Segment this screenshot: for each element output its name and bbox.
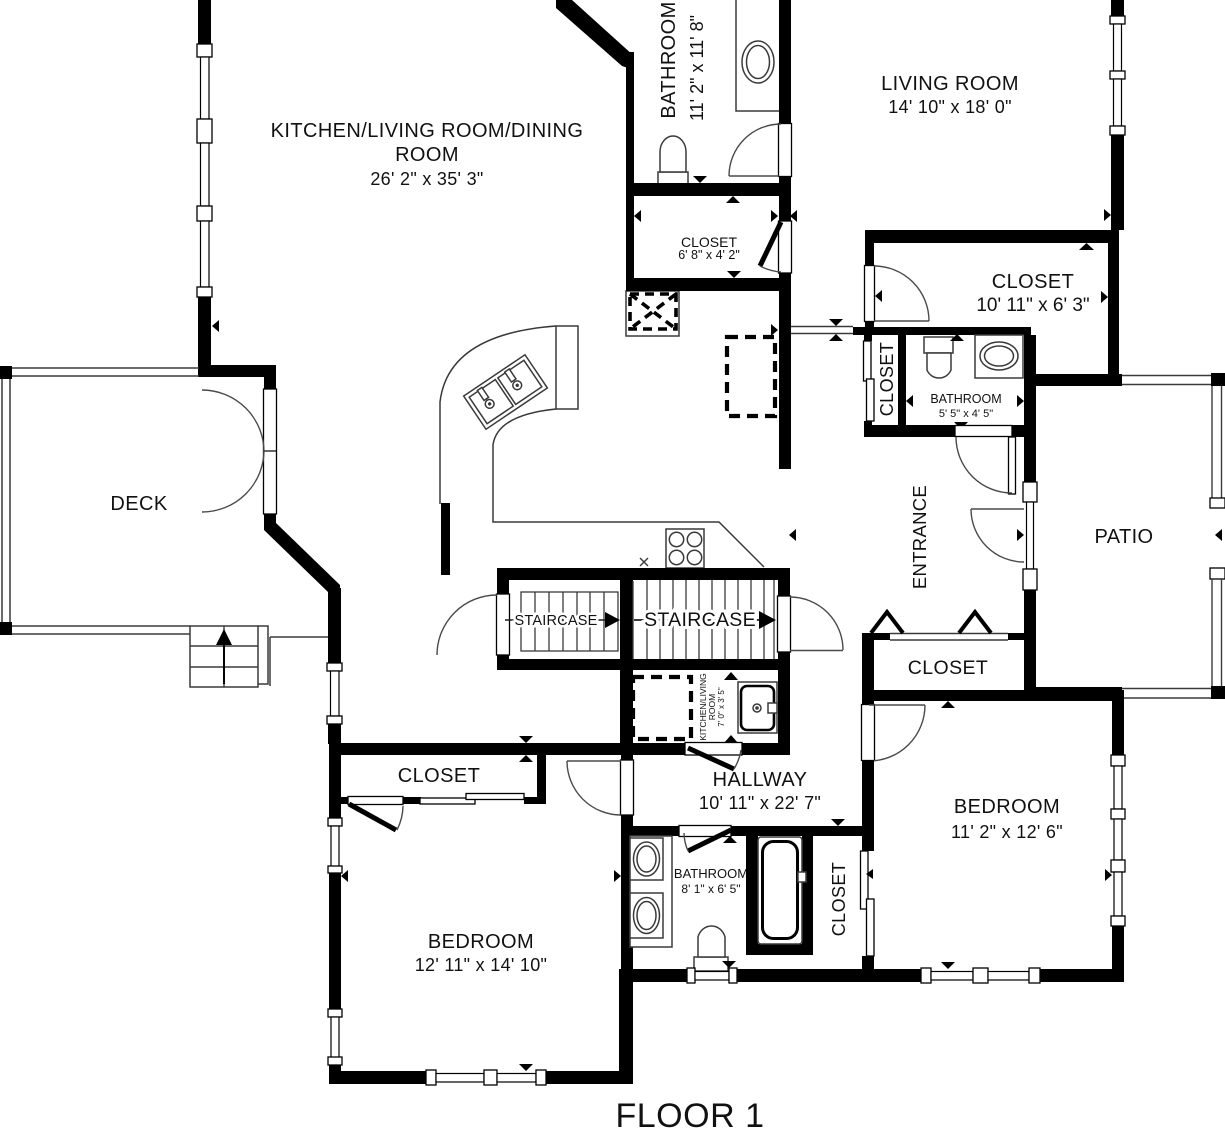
svg-text:11' 2" x 12' 6": 11' 2" x 12' 6" (951, 822, 1063, 842)
svg-text:ROOM: ROOM (395, 144, 459, 166)
svg-text:KITCHEN/LIVING ROOM/DINING: KITCHEN/LIVING ROOM/DINING (271, 120, 584, 142)
svg-text:CLOSET: CLOSET (877, 342, 897, 416)
svg-text:14' 10" x 18' 0": 14' 10" x 18' 0" (888, 97, 1012, 117)
svg-text:ROOM: ROOM (707, 694, 717, 720)
svg-text:7' 0" x 3' 5": 7' 0" x 3' 5" (717, 687, 726, 727)
svg-text:BATHROOM: BATHROOM (674, 866, 748, 881)
svg-text:5' 5" x 4' 5": 5' 5" x 4' 5" (939, 408, 993, 420)
svg-text:CLOSET: CLOSET (398, 765, 480, 787)
svg-text:BEDROOM: BEDROOM (428, 931, 534, 953)
svg-text:STAIRCASE: STAIRCASE (644, 609, 756, 631)
svg-text:DECK: DECK (110, 493, 167, 515)
svg-text:HALLWAY: HALLWAY (713, 769, 808, 791)
svg-text:8' 1" x 6' 5": 8' 1" x 6' 5" (681, 882, 740, 896)
svg-text:LIVING ROOM: LIVING ROOM (881, 73, 1019, 95)
svg-text:11' 2" x 11' 8": 11' 2" x 11' 8" (687, 15, 707, 121)
svg-text:10' 11" x 6' 3": 10' 11" x 6' 3" (976, 295, 1089, 316)
svg-text:CLOSET: CLOSET (829, 862, 849, 936)
svg-text:ENTRANCE: ENTRANCE (909, 485, 930, 589)
svg-text:FLOOR 1: FLOOR 1 (616, 1097, 765, 1132)
svg-text:PATIO: PATIO (1094, 526, 1153, 548)
svg-text:10' 11" x 22' 7": 10' 11" x 22' 7" (699, 793, 821, 813)
svg-text:6' 8" x 4' 2": 6' 8" x 4' 2" (678, 248, 740, 262)
svg-text:12' 11" x 14' 10": 12' 11" x 14' 10" (415, 955, 548, 975)
svg-text:BATHROOM: BATHROOM (658, 1, 680, 118)
svg-text:CLOSET: CLOSET (908, 657, 988, 679)
svg-text:BEDROOM: BEDROOM (954, 796, 1060, 818)
svg-text:26' 2" x 35' 3": 26' 2" x 35' 3" (370, 169, 483, 189)
svg-text:CLOSET: CLOSET (992, 271, 1074, 293)
svg-text:BATHROOM: BATHROOM (930, 392, 1001, 406)
svg-text:STAIRCASE: STAIRCASE (515, 613, 598, 629)
